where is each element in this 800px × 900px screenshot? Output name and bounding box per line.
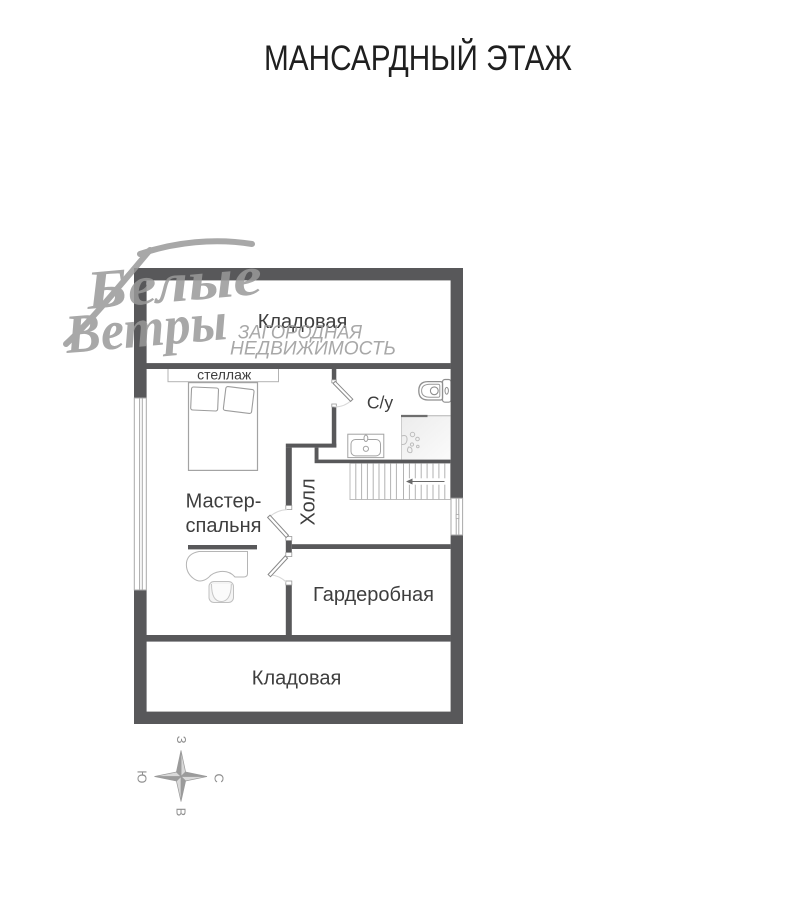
svg-text:З: З (174, 736, 189, 744)
svg-text:Гардеробная: Гардеробная (313, 584, 434, 606)
svg-text:Мастер-: Мастер- (186, 491, 262, 513)
svg-text:спальня: спальня (186, 515, 262, 537)
svg-text:Холл: Холл (298, 478, 320, 525)
svg-text:Кладовая: Кладовая (252, 667, 342, 689)
svg-text:стеллаж: стеллаж (197, 366, 252, 382)
svg-text:В: В (173, 808, 188, 817)
svg-text:МАНСАРДНЫЙ ЭТАЖ: МАНСАРДНЫЙ ЭТАЖ (264, 38, 572, 78)
svg-text:Ю: Ю (134, 770, 149, 783)
svg-text:НЕДВИЖИМОСТЬ: НЕДВИЖИМОСТЬ (230, 339, 396, 360)
svg-text:С/у: С/у (367, 393, 394, 413)
svg-text:С: С (211, 774, 226, 783)
